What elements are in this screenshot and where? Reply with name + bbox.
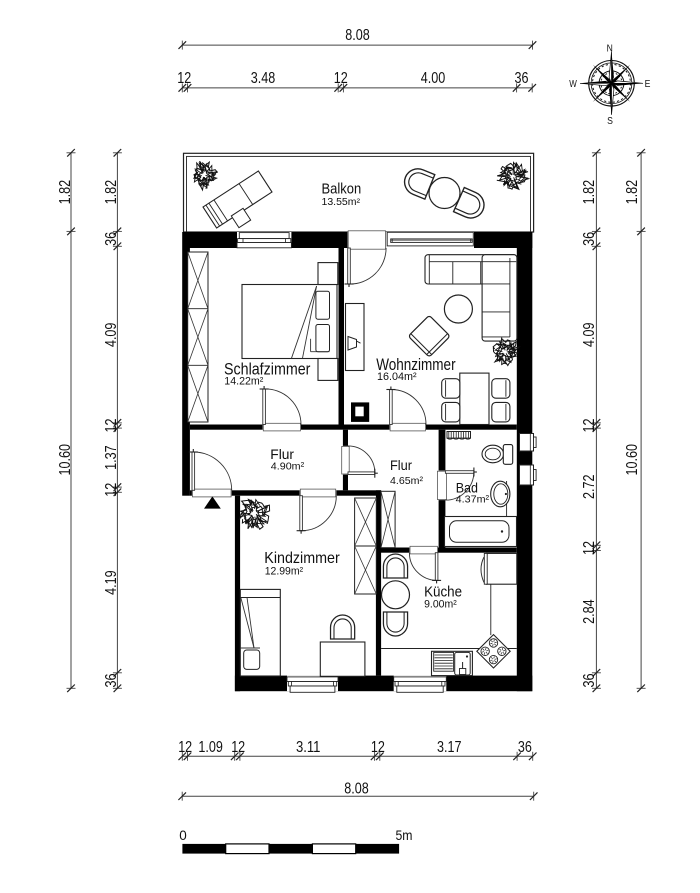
svg-text:1.82: 1.82 (624, 180, 641, 205)
svg-text:4.09: 4.09 (103, 322, 120, 347)
svg-text:36: 36 (518, 739, 532, 756)
svg-text:3.11: 3.11 (296, 739, 321, 756)
svg-text:36: 36 (581, 232, 598, 246)
svg-text:4.00: 4.00 (421, 70, 446, 87)
svg-text:36: 36 (515, 70, 529, 87)
svg-text:1.82: 1.82 (103, 180, 120, 205)
svg-text:12: 12 (103, 483, 120, 497)
svg-text:9.00m²: 9.00m² (424, 599, 457, 611)
svg-text:0: 0 (179, 827, 187, 843)
svg-text:Kindzimmer: Kindzimmer (264, 550, 339, 567)
svg-text:10.60: 10.60 (624, 444, 641, 476)
svg-text:3.17: 3.17 (437, 739, 462, 756)
svg-text:Bad: Bad (456, 480, 478, 495)
svg-text:1.82: 1.82 (57, 180, 74, 205)
svg-text:Flur: Flur (390, 458, 412, 473)
svg-text:4.37m²: 4.37m² (456, 495, 490, 506)
svg-text:12: 12 (334, 70, 348, 87)
svg-text:1.82: 1.82 (581, 180, 598, 205)
svg-text:2.84: 2.84 (581, 599, 598, 624)
svg-text:36: 36 (103, 673, 120, 687)
svg-text:12: 12 (103, 419, 120, 433)
svg-text:14.22m²: 14.22m² (224, 376, 263, 388)
svg-text:36: 36 (103, 232, 120, 246)
svg-text:E: E (645, 79, 651, 90)
svg-text:5m: 5m (396, 827, 413, 843)
svg-text:W: W (569, 79, 577, 90)
svg-text:2.72: 2.72 (581, 474, 598, 499)
svg-text:Balkon: Balkon (322, 182, 362, 198)
svg-text:N: N (607, 44, 613, 55)
svg-text:12: 12 (178, 739, 192, 756)
svg-text:1.37: 1.37 (103, 445, 120, 470)
svg-text:8.08: 8.08 (344, 781, 369, 798)
svg-text:12: 12 (581, 541, 598, 555)
svg-text:12: 12 (231, 739, 245, 756)
svg-text:4.65m²: 4.65m² (390, 476, 424, 487)
svg-text:12: 12 (371, 739, 385, 756)
svg-text:3.48: 3.48 (251, 70, 276, 87)
svg-text:12: 12 (177, 70, 191, 87)
svg-text:12: 12 (581, 419, 598, 433)
svg-text:Flur: Flur (270, 447, 294, 463)
svg-text:12.99m²: 12.99m² (265, 566, 304, 578)
svg-text:4.90m²: 4.90m² (271, 462, 305, 473)
svg-text:10.60: 10.60 (57, 444, 74, 476)
svg-text:4.19: 4.19 (103, 570, 120, 595)
svg-text:4.09: 4.09 (581, 322, 598, 347)
svg-text:16.04m²: 16.04m² (377, 371, 417, 383)
svg-text:S: S (607, 116, 613, 127)
svg-text:1.09: 1.09 (198, 739, 223, 756)
svg-text:13.55m²: 13.55m² (322, 197, 361, 208)
svg-text:36: 36 (581, 673, 598, 687)
svg-text:8.08: 8.08 (345, 27, 370, 44)
